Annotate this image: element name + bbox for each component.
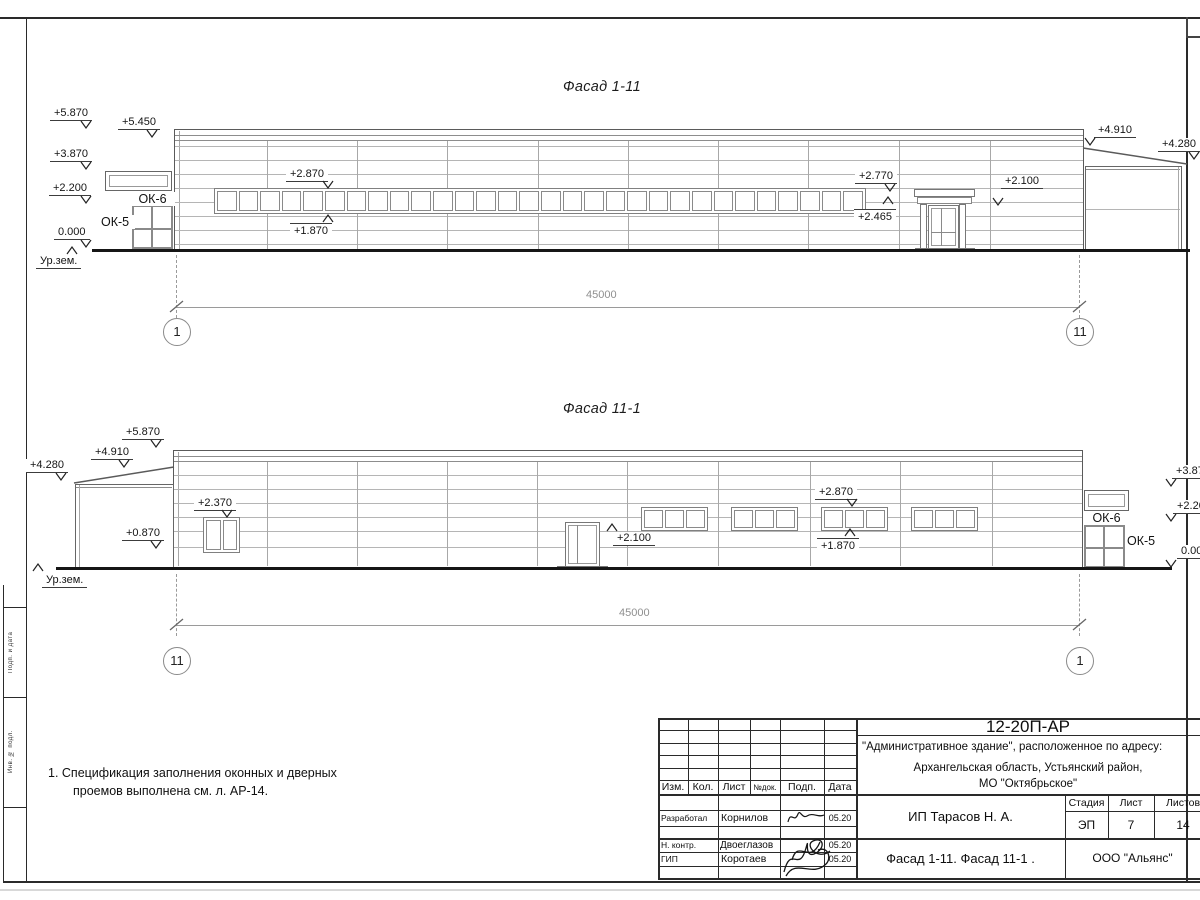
ribbon-pane [563, 191, 583, 211]
siding-line [174, 489, 1082, 490]
dimension-line [176, 307, 1080, 308]
level-arrow-up-icon [32, 562, 44, 572]
level-arrow-down-icon [221, 509, 233, 519]
parapet-line [175, 135, 1083, 136]
date-gip: 05.20 [824, 852, 856, 866]
ribbon-pane [714, 191, 734, 211]
annex-wall [75, 484, 174, 568]
ribbon-pane [800, 191, 820, 211]
level-mark: 0.000 [1177, 545, 1200, 559]
level-mark: +0.870 [122, 527, 164, 541]
level-arrow-down-icon [992, 197, 1004, 207]
door-pilaster [920, 204, 927, 249]
panel-joint [447, 462, 448, 566]
window-pane [686, 510, 705, 528]
ribbon-pane [282, 191, 302, 211]
level-mark: +3.870 [50, 148, 92, 162]
level-mark: 0.000 [54, 226, 90, 240]
level-arrow-down-icon [80, 120, 92, 130]
ribbon-pane [411, 191, 431, 211]
axis-bubble: 11 [1066, 318, 1094, 346]
panel-joint [718, 462, 719, 566]
extension-line [176, 255, 177, 318]
window-3pane [731, 507, 798, 531]
window-pane [734, 510, 753, 528]
level-arrow-up-icon [882, 195, 894, 205]
ground-line [56, 567, 1172, 570]
corner-stamp-box [1186, 17, 1200, 38]
col-podp: Подп. [780, 780, 824, 794]
window-3pane [911, 507, 978, 531]
window-pane [755, 510, 774, 528]
ribbon-pane [260, 191, 280, 211]
window-3pane [641, 507, 708, 531]
ribbon-pane [584, 191, 604, 211]
parapet-line [175, 140, 1083, 141]
window-pane [956, 510, 975, 528]
ribbon-pane [692, 191, 712, 211]
level-arrow-up-icon [66, 245, 78, 255]
level-arrow-down-icon [884, 183, 896, 193]
ribbon-pane [498, 191, 518, 211]
level-mark: +1.870 [817, 538, 859, 552]
ok6-box-inner [1088, 494, 1125, 507]
siding-line [174, 503, 1082, 504]
ribbon-pane [606, 191, 626, 211]
wall-corner-line [179, 131, 180, 249]
siding-line [174, 547, 1082, 548]
ribbon-pane [347, 191, 367, 211]
level-arrow-down-icon [80, 195, 92, 205]
window-pane [223, 520, 238, 550]
sheet-edge-shadow [0, 889, 1200, 891]
note-line-1: 1. Спецификация заполнения оконных и две… [48, 766, 337, 780]
door-mullion [941, 208, 942, 246]
role-ncontrol: Н. контр. [661, 838, 717, 852]
level-mark: +4.910 [1094, 124, 1136, 138]
ribbon-pane [778, 191, 798, 211]
ribbon-window [214, 188, 866, 214]
strip-divider [3, 697, 26, 698]
axis-bubble: 11 [163, 647, 191, 675]
level-mark: +4.280 [26, 459, 68, 473]
ribbon-pane [627, 191, 647, 211]
level-arrow-up-icon [844, 527, 856, 537]
back-door-leaf [568, 525, 597, 564]
door-mullion [577, 525, 578, 564]
level-mark: +3.870 [1172, 465, 1200, 479]
level-arrow-up-icon [322, 213, 334, 223]
dimension-line [176, 625, 1080, 626]
ribbon-pane [390, 191, 410, 211]
door-canopy [914, 189, 975, 197]
parapet-line [174, 456, 1082, 457]
ground-level-label: Ур.зем. [36, 255, 81, 269]
panel-joint [990, 141, 991, 249]
level-arrow-down-icon [1188, 151, 1200, 161]
panel-joint [267, 462, 268, 566]
ok6-label: ОК-6 [1084, 511, 1129, 525]
ribbon-pane [670, 191, 690, 211]
ribbon-pane [843, 191, 863, 211]
axis-bubble: 1 [163, 318, 191, 346]
level-arrow-down-icon [80, 239, 92, 249]
ribbon-pane [822, 191, 842, 211]
window-pane [824, 510, 843, 528]
ribbon-pane [649, 191, 669, 211]
door-mullion [931, 232, 956, 233]
ribbon-pane [303, 191, 323, 211]
axis-bubble: 1 [1066, 647, 1094, 675]
ribbon-pane [455, 191, 475, 211]
level-mark: +2.100 [1001, 175, 1043, 189]
col-ndok: №док. [750, 780, 780, 794]
level-mark: +2.100 [613, 532, 655, 546]
ok6-box-inner [109, 175, 168, 187]
extension-line [1079, 574, 1080, 636]
name-developer: Корнилов [721, 810, 779, 826]
date-ncontrol: 05.20 [824, 838, 856, 852]
level-arrow-down-icon [55, 472, 67, 482]
ribbon-pane [519, 191, 539, 211]
level-mark: +4.910 [91, 446, 133, 460]
parapet-line [174, 461, 1082, 462]
level-arrow-down-icon [118, 459, 130, 469]
window-pane [935, 510, 954, 528]
project-address-2: Архангельская область, Устьянский район, [856, 761, 1200, 775]
window-pane [914, 510, 933, 528]
sheet-header: Лист [1108, 794, 1154, 811]
name-ncontrol: Двоеглазов [720, 838, 780, 852]
col-kol: Кол. [688, 780, 718, 794]
level-mark: +5.870 [122, 426, 164, 440]
strip-label-inv: Инв. № подл. [4, 700, 18, 804]
panel-joint [992, 462, 993, 566]
ok5-mullion [151, 207, 153, 247]
ok6-label: ОК-6 [130, 192, 175, 206]
ribbon-pane [735, 191, 755, 211]
stage-value: ЭП [1065, 811, 1108, 838]
level-arrow-down-icon [1084, 137, 1096, 147]
window-pane [845, 510, 864, 528]
ground-line [92, 249, 1190, 252]
level-arrow-down-icon [80, 161, 92, 171]
window-pane [776, 510, 795, 528]
annex-roof-f2 [74, 467, 174, 483]
level-mark: +5.450 [118, 116, 160, 130]
panel-joint [537, 462, 538, 566]
ok5-label: ОК-5 [101, 215, 135, 229]
name-gip: Коротаев [721, 852, 779, 866]
facade-title: Фасад 11-1 [517, 401, 687, 417]
frame-bottom [3, 881, 1200, 883]
panel-joint [810, 462, 811, 566]
panel-joint [357, 462, 358, 566]
signature-kornilov [788, 813, 824, 822]
strip-divider [3, 807, 26, 808]
level-mark: +2.465 [854, 209, 896, 223]
ribbon-pane [757, 191, 777, 211]
level-mark: +2.200 [1173, 500, 1200, 514]
level-arrow-down-icon [1165, 513, 1177, 523]
sheet-number: 7 [1108, 811, 1154, 838]
door-canopy-band [917, 197, 972, 204]
frame-top [0, 17, 1200, 19]
ok5-mullion [1086, 547, 1123, 549]
project-address-3: МО "Октябрьское" [856, 777, 1200, 791]
ribbon-pane [476, 191, 496, 211]
siding-line [175, 146, 1083, 147]
level-arrow-down-icon [150, 540, 162, 550]
ok5-label: ОК-5 [1127, 534, 1163, 548]
ribbon-pane [541, 191, 561, 211]
annex-edge-line [1178, 167, 1179, 249]
role-gip: ГИП [661, 852, 717, 866]
entrance-door-leaf [931, 208, 956, 246]
level-mark: +5.870 [50, 107, 92, 121]
dimension-label: 45000 [583, 289, 620, 301]
date-developer: 05.20 [824, 810, 856, 826]
ribbon-pane [325, 191, 345, 211]
ground-level-label: Ур.зем. [42, 574, 87, 588]
col-list: Лист [718, 780, 750, 794]
annex-mid-line [1086, 209, 1180, 210]
window-pane [866, 510, 885, 528]
level-arrow-down-icon [1165, 559, 1177, 569]
facade-title: Фасад 1-11 [517, 79, 687, 95]
ribbon-pane [368, 191, 388, 211]
siding-line [175, 160, 1083, 161]
level-mark: +2.200 [49, 182, 91, 196]
level-mark: +1.870 [290, 223, 332, 237]
level-mark: +2.770 [855, 170, 897, 184]
level-arrow-up-icon [606, 522, 618, 532]
annex-wall [1085, 166, 1182, 250]
level-arrow-down-icon [146, 129, 158, 139]
window-pane [644, 510, 663, 528]
wall-corner-line [178, 452, 179, 566]
ok5-mullion [134, 228, 171, 230]
strip-divider [3, 607, 26, 608]
extension-line [1079, 255, 1080, 318]
level-arrow-down-icon [846, 498, 858, 508]
panel-joint [900, 462, 901, 566]
window-pane [665, 510, 684, 528]
sheets-header: Листов [1154, 794, 1200, 811]
extension-line [176, 574, 177, 636]
panel-joint [899, 141, 900, 249]
stage-header: Стадия [1065, 794, 1108, 811]
window-pane [206, 520, 221, 550]
doc-code: 12-20П-АР [856, 718, 1200, 735]
ribbon-pane [217, 191, 237, 211]
col-izm: Изм. [658, 780, 688, 794]
sheet-count: 14 [1154, 811, 1200, 838]
door-pilaster [959, 204, 966, 249]
annex-top-line [76, 487, 172, 488]
company-name: ООО "Альянс" [1065, 838, 1200, 878]
project-address-1: "Административное здание", расположенное… [862, 740, 1200, 754]
frame-left-inner [26, 17, 27, 881]
siding-line [174, 475, 1082, 476]
level-mark: +4.280 [1158, 138, 1200, 152]
level-arrow-down-icon [150, 439, 162, 449]
level-arrow-down-icon [322, 180, 334, 190]
dimension-label: 45000 [616, 607, 653, 619]
client-name: ИП Тарасов Н. А. [856, 794, 1065, 838]
role-developer: Разработал [661, 810, 717, 826]
note-line-2: проемов выполнена см. л. АР-14. [73, 784, 268, 798]
col-data: Дата [824, 780, 856, 794]
ribbon-pane [239, 191, 259, 211]
sheet-title: Фасад 1-11. Фасад 11-1 . [856, 838, 1065, 878]
level-arrow-down-icon [1165, 478, 1177, 488]
panel-joint [627, 462, 628, 566]
ribbon-pane [433, 191, 453, 211]
drawing-sheet: Подп. и дата Инв. № подл. Фасад 1-11 [0, 0, 1200, 900]
strip-label-podp: Подп. и дата [4, 609, 18, 695]
annex-top-line [1086, 169, 1180, 170]
annex-edge-line [79, 485, 80, 567]
window-2pane [203, 517, 240, 553]
